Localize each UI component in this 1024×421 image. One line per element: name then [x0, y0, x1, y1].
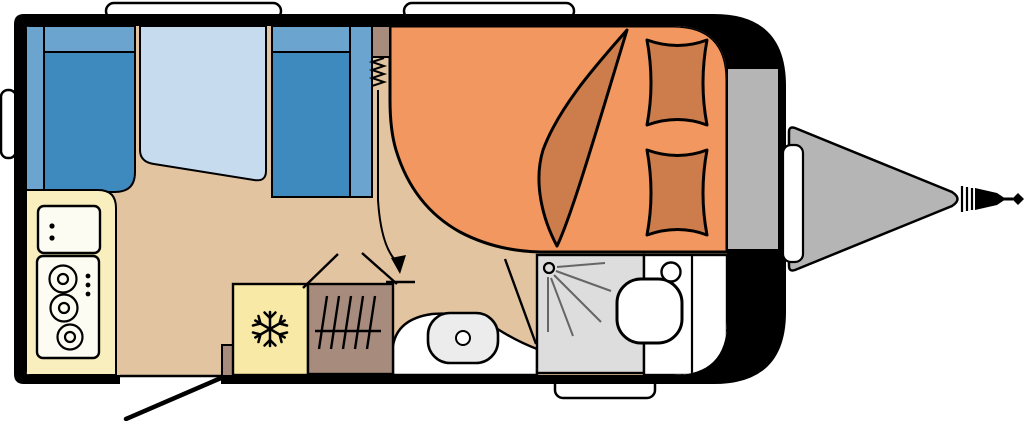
faucet-dot	[49, 235, 54, 240]
left-bench-cushion	[44, 52, 135, 192]
pillow-bottom	[647, 150, 707, 235]
toilet-bowl	[617, 279, 682, 343]
caravan-floor-plan-page	[0, 0, 1024, 421]
hitch-knob	[1012, 193, 1024, 205]
left-bench-side	[26, 26, 44, 192]
faucet-dot	[49, 223, 54, 228]
coupling-hitch	[975, 188, 1006, 210]
left-bench-backrest	[44, 26, 135, 52]
right-bench-backrest	[272, 26, 350, 52]
stove-knob-dots	[86, 274, 91, 297]
dinette-table	[140, 26, 266, 180]
toilet-flush	[662, 263, 681, 282]
kitchen	[26, 190, 116, 375]
right-bench-cushion	[272, 52, 350, 197]
dinette	[26, 26, 390, 197]
drawbar-assembly	[789, 128, 1024, 271]
drawbar-triangle	[789, 128, 958, 271]
front-right-hatch	[783, 145, 803, 262]
washbasin-drain	[456, 331, 470, 345]
top-cabinet	[372, 26, 390, 57]
shower-head-icon	[544, 263, 554, 273]
entry-door	[120, 376, 221, 419]
kitchen-sink	[38, 206, 100, 253]
gas-locker	[727, 68, 779, 250]
right-bench-armrest	[350, 26, 372, 197]
hitch-ribs	[962, 186, 972, 212]
caravan-floor-plan	[0, 0, 1024, 421]
pillow-top	[647, 40, 707, 125]
rear-left-window	[1, 90, 16, 158]
